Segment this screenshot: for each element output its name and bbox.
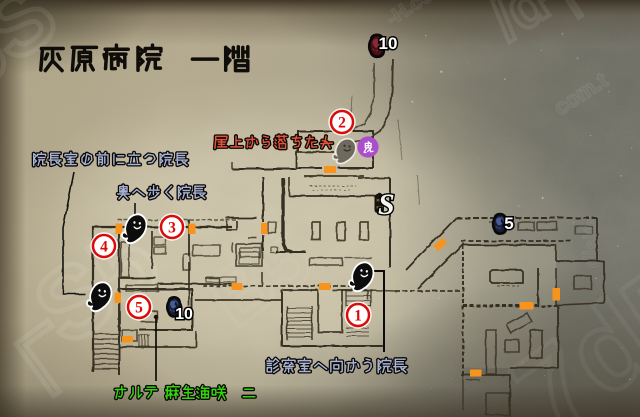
svg-text:3: 3 <box>168 219 176 236</box>
svg-text:10: 10 <box>379 34 398 53</box>
svg-text:5: 5 <box>135 299 143 316</box>
svg-text:5: 5 <box>504 214 513 233</box>
svg-text:10: 10 <box>175 306 193 323</box>
svg-text:S: S <box>378 188 395 221</box>
svg-text:2: 2 <box>338 114 346 131</box>
svg-text:1: 1 <box>354 307 362 324</box>
svg-text:4: 4 <box>100 238 108 255</box>
